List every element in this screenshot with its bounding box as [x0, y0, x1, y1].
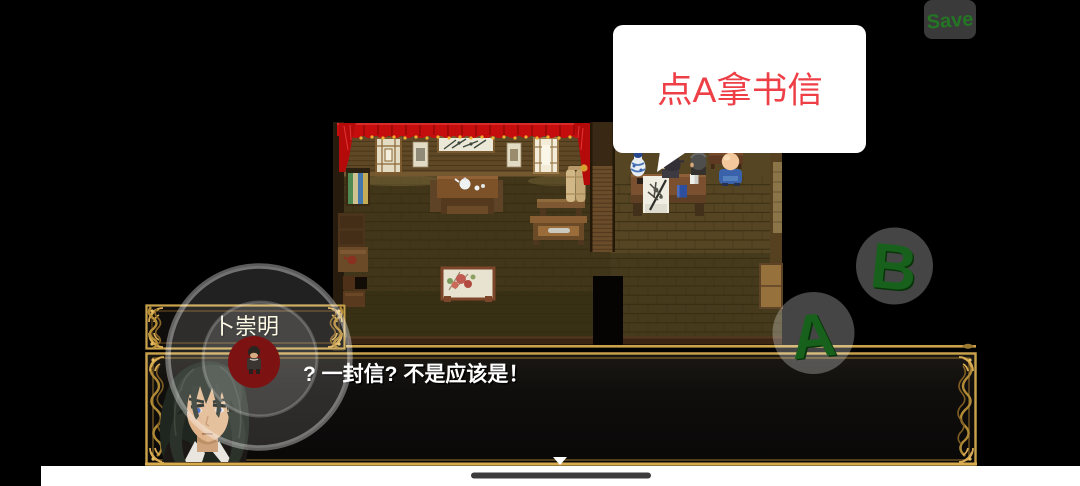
svg-text:A: A — [787, 300, 839, 373]
svg-text:点A拿书信: 点A拿书信 — [657, 70, 823, 110]
svg-text:B: B — [867, 229, 920, 305]
svg-text:Save: Save — [926, 8, 974, 33]
